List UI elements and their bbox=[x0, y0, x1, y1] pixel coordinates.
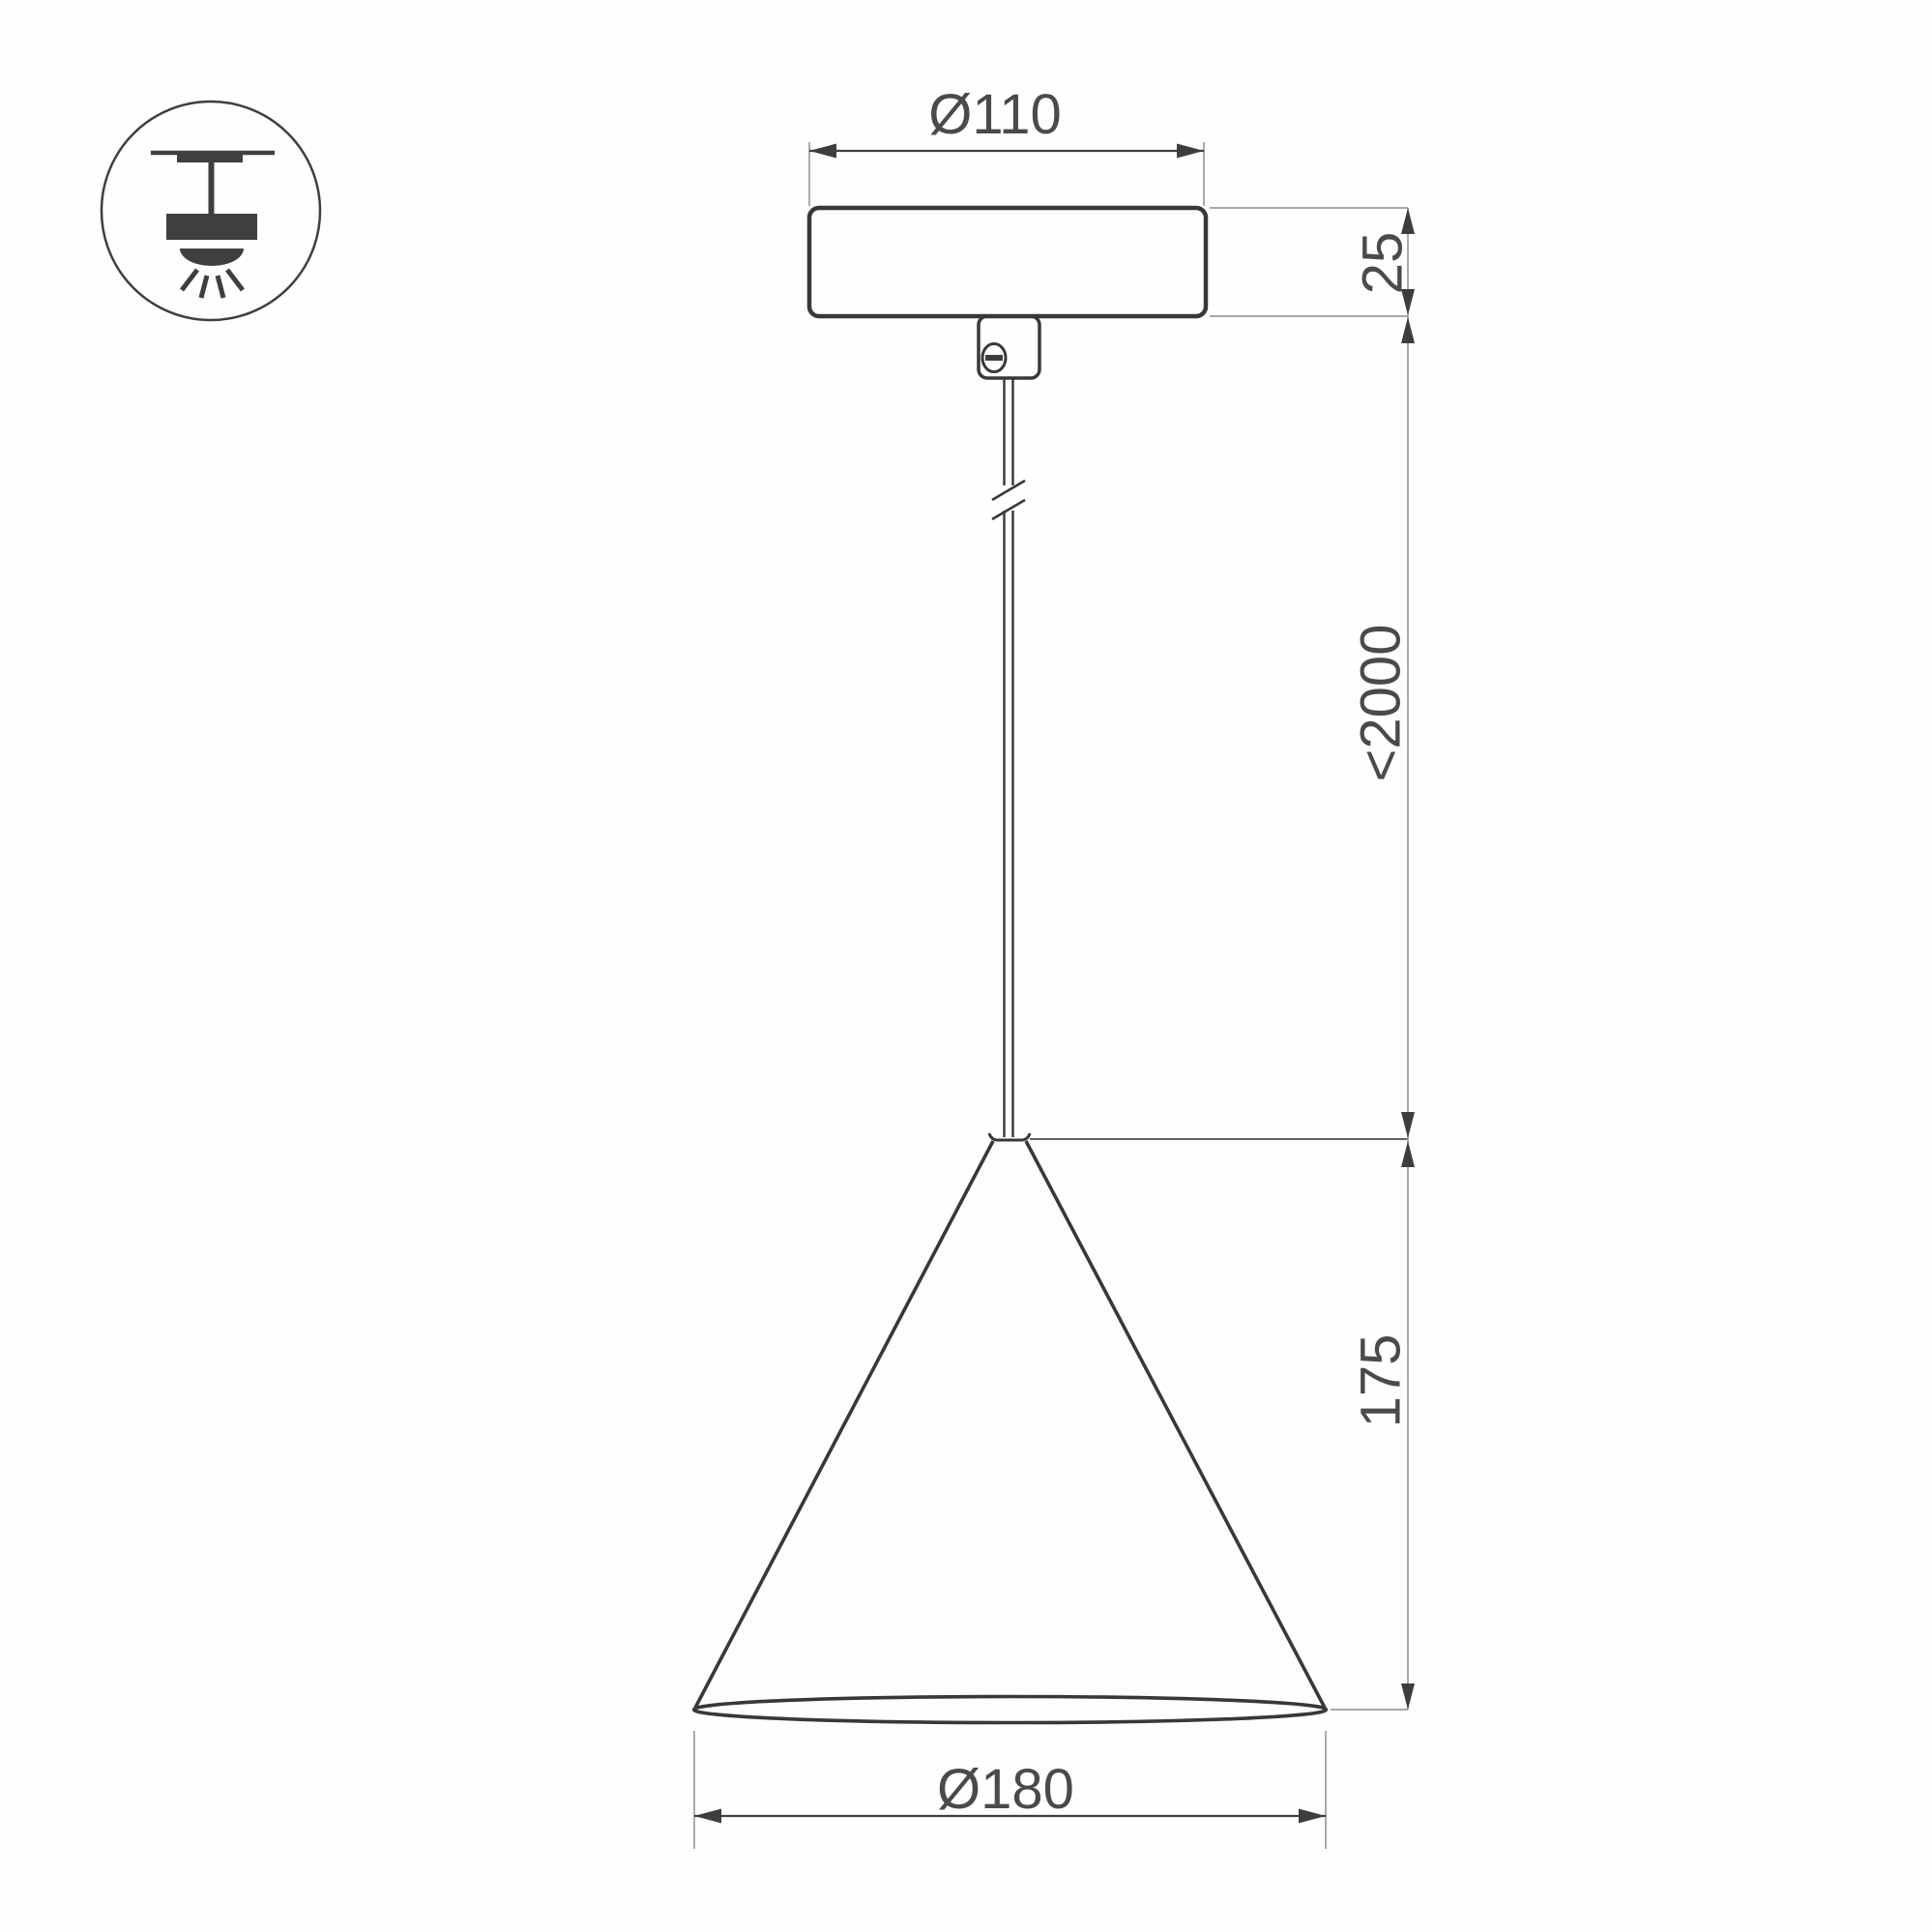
arrow-right-icon bbox=[1299, 1809, 1326, 1824]
arrow-up-icon bbox=[1401, 317, 1415, 343]
label-shade-diameter: Ø180 bbox=[937, 1758, 1074, 1821]
cable-break-icon bbox=[992, 481, 1025, 519]
icon-lamp-body bbox=[166, 214, 257, 240]
luminaire-drawing bbox=[694, 208, 1327, 1723]
arrow-left-icon bbox=[694, 1809, 721, 1824]
arrow-right-icon bbox=[1177, 144, 1204, 159]
icon-suspension-rod bbox=[209, 162, 215, 215]
arrow-down-icon bbox=[1401, 1112, 1415, 1138]
icon-light-dome bbox=[180, 249, 244, 266]
dimension-drawing: Ø110 25 <2000 175 Ø180 bbox=[0, 0, 1932, 1932]
arrow-left-icon bbox=[809, 144, 836, 159]
label-shade-height: 175 bbox=[1350, 1334, 1413, 1428]
label-canopy-diameter: Ø110 bbox=[928, 83, 1062, 146]
cone-body-fill bbox=[695, 1140, 1325, 1706]
cone-apex-neck bbox=[989, 1133, 1030, 1140]
icon-light-rays bbox=[182, 270, 243, 298]
arrow-down-icon bbox=[1401, 1683, 1415, 1710]
drawing-canvas: Ø110 25 <2000 175 Ø180 bbox=[0, 0, 1932, 1932]
arrow-up-icon bbox=[1401, 1141, 1415, 1167]
label-canopy-height: 25 bbox=[1352, 232, 1415, 295]
arrow-up-icon bbox=[1401, 208, 1415, 234]
grip-screw-slot bbox=[985, 355, 1003, 361]
pendant-mount-icon bbox=[102, 102, 320, 320]
icon-mount-plate bbox=[177, 155, 243, 162]
canopy bbox=[809, 208, 1206, 316]
label-suspension-length: <2000 bbox=[1350, 625, 1413, 782]
cone-shade bbox=[694, 1133, 1327, 1723]
